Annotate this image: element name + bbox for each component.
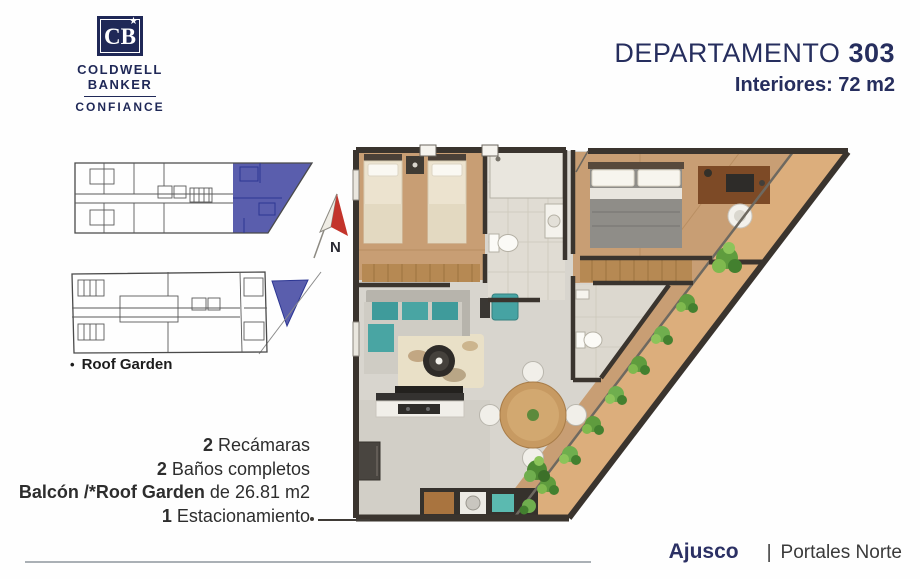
detail-bedrooms: 2 Recámaras xyxy=(18,434,310,458)
page-title: DEPARTAMENTO 303 xyxy=(614,38,895,69)
sofa-back xyxy=(366,290,470,304)
detail-bathrooms: 2 Baños completos xyxy=(18,458,310,482)
logo-square: CB ★ xyxy=(97,16,143,56)
sink xyxy=(576,290,589,299)
shower xyxy=(490,152,563,198)
star-icon: ★ xyxy=(129,17,138,27)
toilet xyxy=(498,235,518,252)
bedroom1-closet xyxy=(362,264,480,282)
roof-garden-text: Roof Garden xyxy=(82,356,173,373)
dining-chair xyxy=(523,362,544,383)
laptop xyxy=(726,174,754,192)
location-name: |Portales Norte xyxy=(767,542,902,564)
interior-partitions xyxy=(75,163,233,233)
location-keyplan-floor xyxy=(62,156,320,252)
building-outline xyxy=(72,272,267,353)
roof-garden-highlight xyxy=(272,280,308,326)
roof-garden-bullet: • xyxy=(70,357,75,372)
cabinet xyxy=(424,492,454,514)
separator: | xyxy=(767,542,772,563)
detail-balcony: Balcón /*Roof Garden de 26.81 m2 xyxy=(18,481,310,505)
title-text: DEPARTAMENTO xyxy=(614,38,848,68)
unit-details: 2 Recámaras 2 Baños completos Balcón /*R… xyxy=(18,434,310,528)
location-keyplan-roof xyxy=(58,264,322,358)
brand-name-line1: COLDWELL xyxy=(58,63,182,78)
project-name: Ajusco xyxy=(669,540,739,564)
unit-number: 303 xyxy=(848,38,895,68)
floor-plan-rendering xyxy=(340,142,855,534)
detail-parking: 1 Estacionamiento xyxy=(18,505,310,529)
window-vent xyxy=(420,145,436,156)
master-closet xyxy=(580,260,692,282)
toilet xyxy=(584,332,602,348)
logo-divider xyxy=(84,96,156,97)
footer: Ajusco |Portales Norte xyxy=(669,540,902,564)
title-block: DEPARTAMENTO 303 Interiores: 72 m2 xyxy=(614,38,895,97)
interior-partitions xyxy=(72,272,267,352)
window-vent xyxy=(482,145,498,156)
dining-chair xyxy=(480,405,501,426)
coldwell-banker-logo: CB ★ COLDWELL BANKER CONFIANCE xyxy=(58,16,182,114)
leader-line xyxy=(318,509,370,521)
brand-name-line2: BANKER xyxy=(58,78,182,93)
interior-area: Interiores: 72 m2 xyxy=(614,74,895,97)
laundry-sink xyxy=(492,494,514,512)
dining-chair xyxy=(566,405,587,426)
bathroom-1 xyxy=(488,150,565,300)
cooktop xyxy=(398,404,440,414)
listing-slide: CB ★ COLDWELL BANKER CONFIANCE DEPARTAME… xyxy=(0,0,920,579)
brand-sub-name: CONFIANCE xyxy=(58,100,182,114)
logo-monogram: CB xyxy=(97,16,143,56)
footer-divider xyxy=(25,561,591,563)
roof-garden-label: •Roof Garden xyxy=(70,356,172,373)
window xyxy=(353,322,359,356)
window xyxy=(353,170,359,200)
kitchen-shelf xyxy=(376,393,464,401)
